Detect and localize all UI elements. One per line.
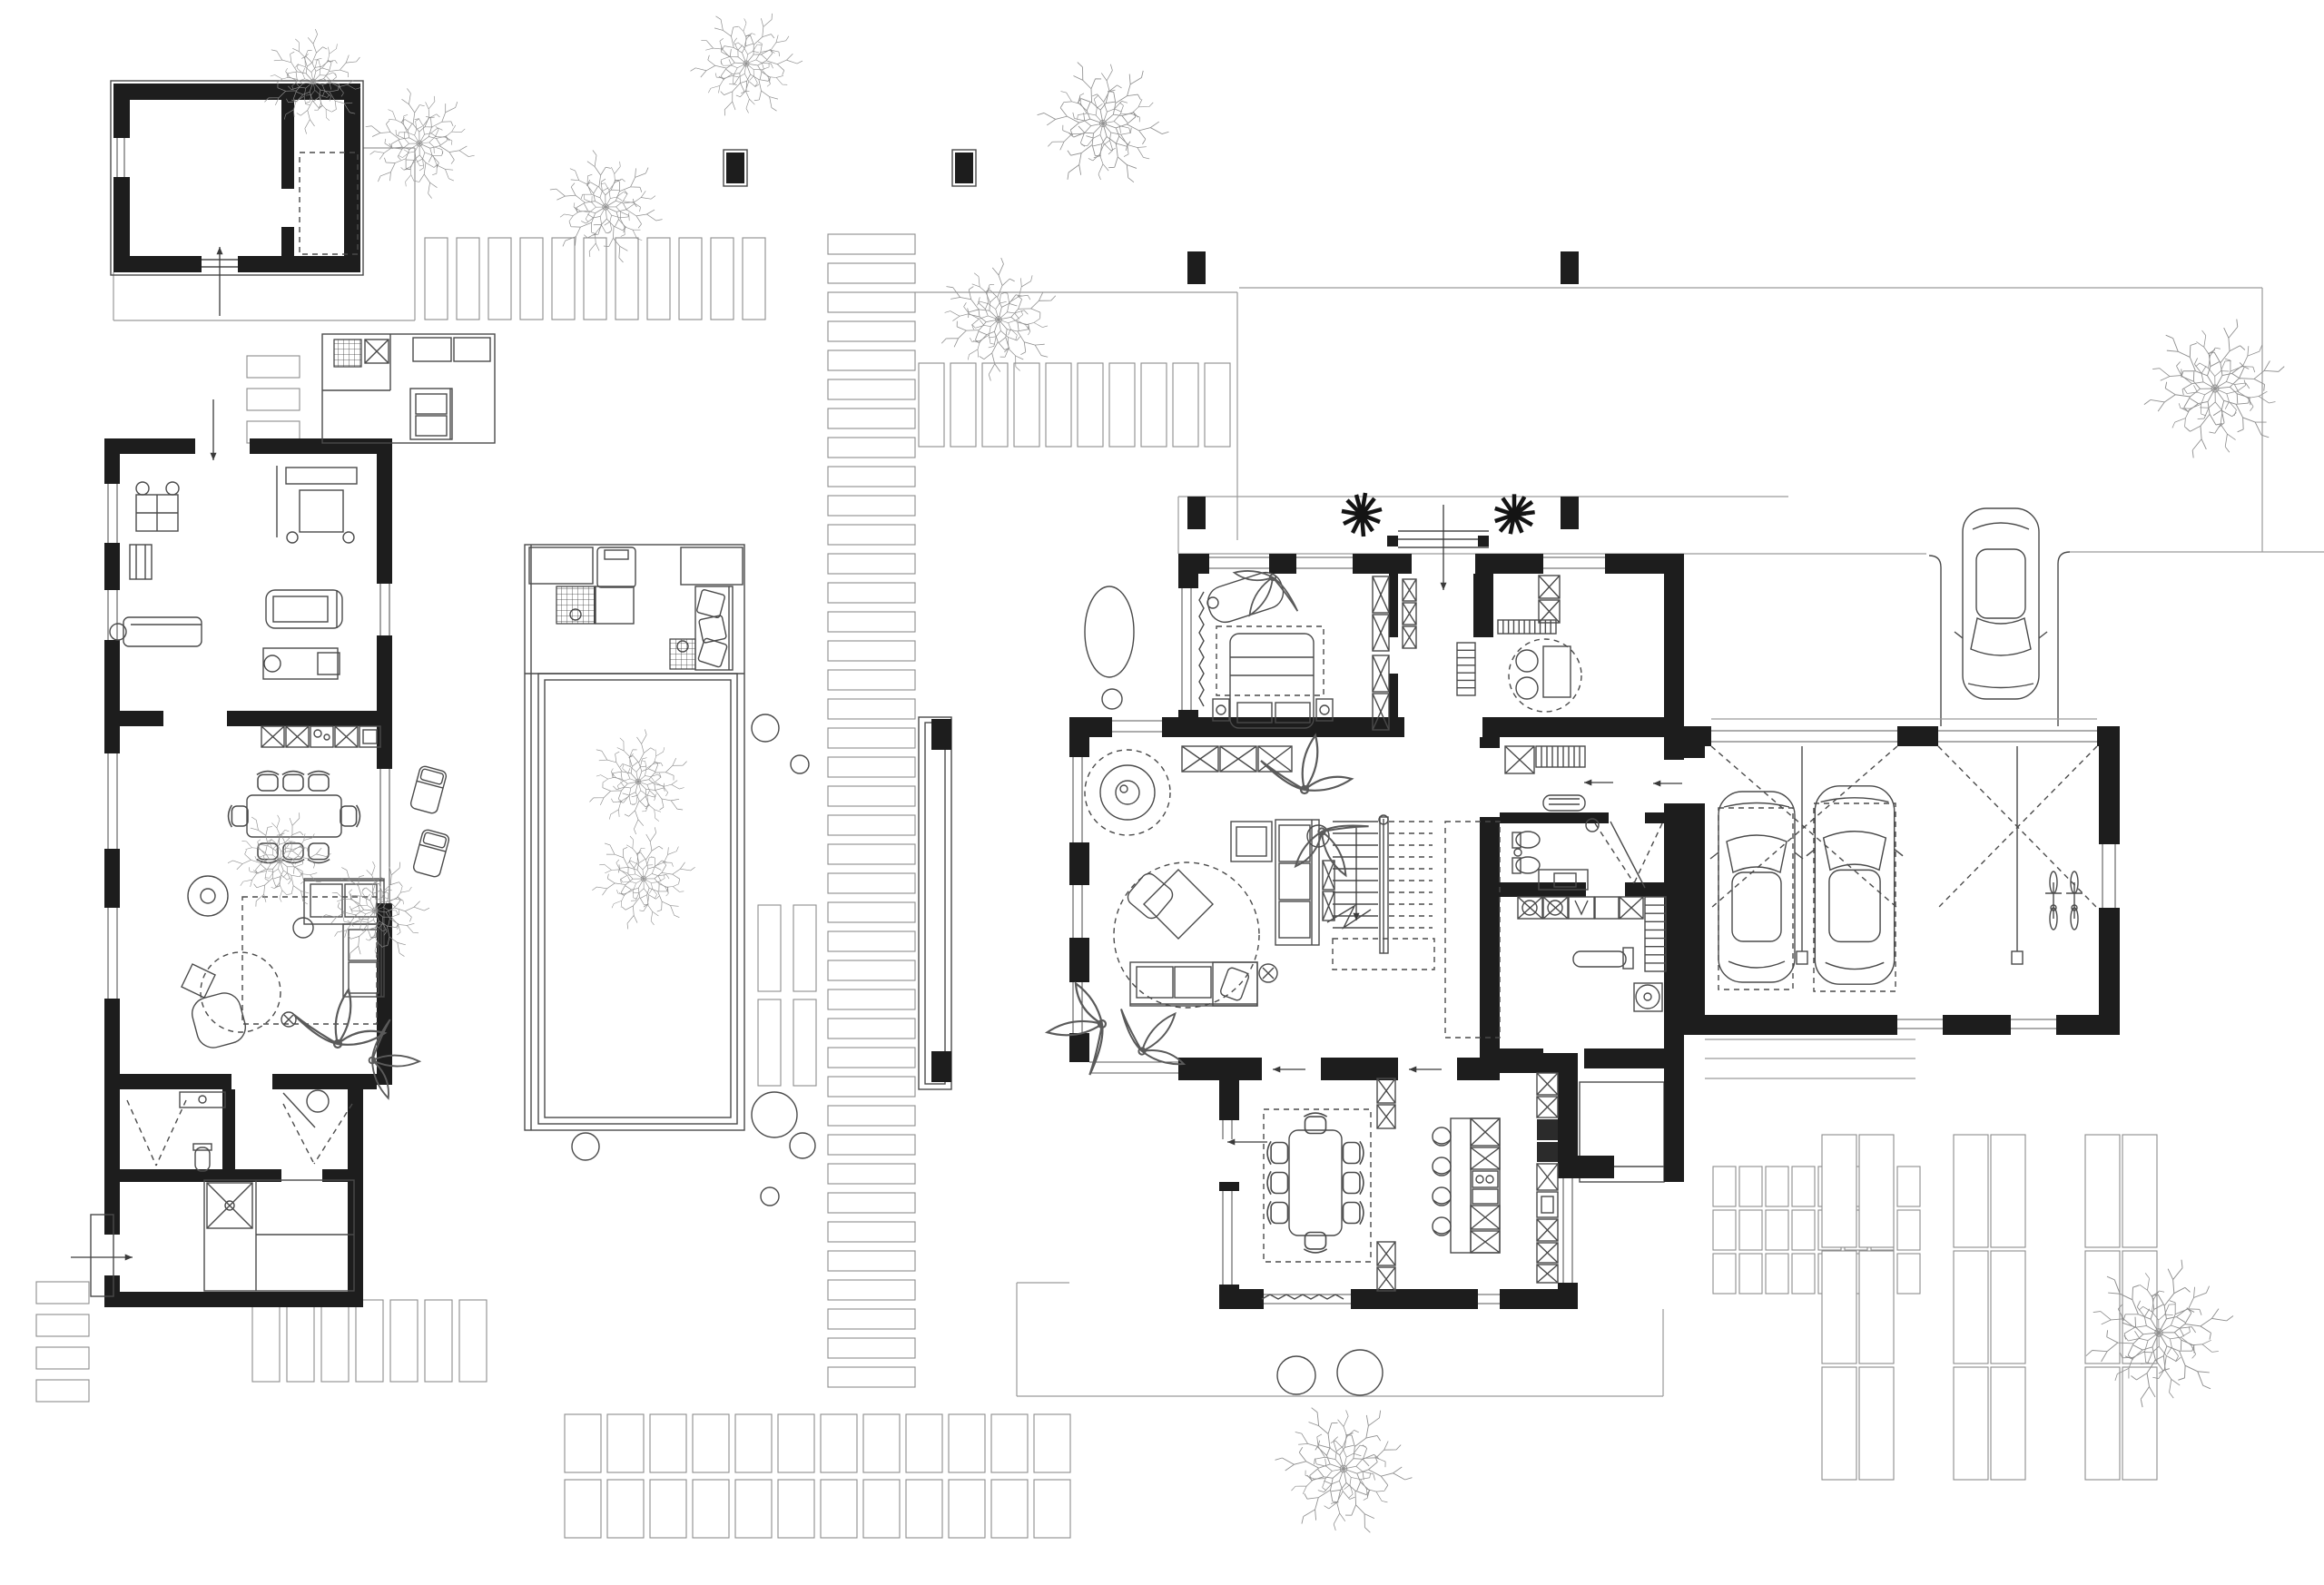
chair-instance	[1344, 1141, 1364, 1164]
chair-instance	[1267, 1171, 1287, 1194]
deckchair-instance	[409, 765, 447, 814]
bedroom	[1199, 562, 1389, 730]
dining-room	[1227, 1078, 1395, 1299]
kitchen	[1433, 1073, 1558, 1283]
chair-instance	[229, 805, 248, 827]
lounge-dining	[182, 726, 450, 1100]
living-room	[1035, 735, 1442, 1084]
tree-instance	[311, 844, 439, 977]
shrub-instance	[1342, 493, 1382, 537]
tree-instance	[567, 802, 721, 956]
plant-instance	[1287, 803, 1384, 896]
tree-instance	[337, 62, 501, 225]
plan-layers	[36, 0, 2324, 1566]
garage	[1684, 719, 2120, 1035]
chair-instance	[308, 772, 330, 791]
car-instance	[1710, 792, 1803, 982]
chair-instance	[1344, 1201, 1364, 1224]
stool-instance	[1433, 1217, 1451, 1236]
mudroom-bath-laundry	[1505, 746, 1682, 1011]
guest-wing-walls	[104, 399, 392, 1307]
pool-terrace	[525, 545, 744, 1130]
chair-instance	[340, 805, 359, 827]
car-instance	[1955, 508, 2047, 699]
bbq-pavilion	[322, 334, 495, 443]
stool-instance	[1433, 1157, 1451, 1176]
tree-instance	[564, 706, 712, 856]
car-instance	[1807, 786, 1903, 984]
chair-instance	[1267, 1141, 1287, 1164]
tree-instance	[1246, 1373, 1442, 1566]
paving	[36, 234, 2157, 1538]
plant-instance	[1035, 979, 1120, 1084]
plan-drawing	[0, 0, 2324, 1585]
deckchair-instance	[412, 829, 449, 878]
shrub-instance	[1484, 485, 1543, 544]
chair-instance	[257, 772, 279, 791]
stool-instance	[1433, 1187, 1451, 1206]
tree-instance	[671, 0, 822, 137]
tree-instance	[1009, 30, 1197, 216]
chair-instance	[1344, 1171, 1364, 1194]
bike-instance	[2066, 871, 2083, 930]
driveway-car	[1955, 508, 2047, 699]
chair-instance	[1267, 1201, 1287, 1224]
plant-instance	[1261, 735, 1352, 793]
tree-instance	[2119, 290, 2309, 486]
outbuilding	[111, 81, 363, 316]
chair-instance	[282, 772, 304, 791]
bike-instance	[2045, 871, 2062, 930]
plant-instance	[294, 989, 385, 1048]
stool-instance	[1433, 1127, 1451, 1146]
chair-instance	[308, 843, 330, 862]
staircase	[1327, 815, 1500, 1038]
site-plan	[0, 0, 2324, 1585]
gym	[110, 466, 357, 679]
